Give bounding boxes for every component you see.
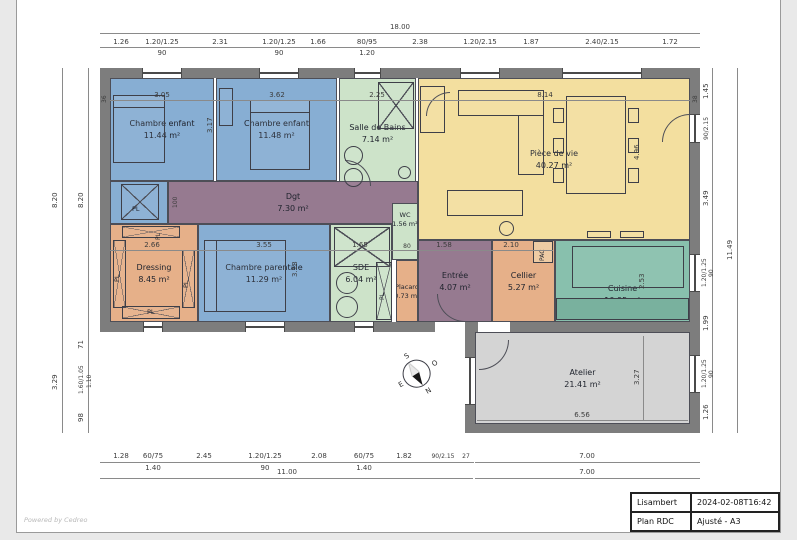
dim-line	[62, 68, 63, 332]
sofa-corner-icon	[518, 115, 544, 175]
dim-sublabel: 90	[137, 49, 187, 57]
room-placard: Placard 0.73 m²	[396, 260, 418, 322]
kitchen-island-icon	[572, 246, 684, 288]
window	[259, 68, 299, 78]
dim-label: 71	[77, 334, 86, 356]
dim-sublabel: 90	[707, 262, 716, 284]
room-name: WC	[400, 211, 411, 219]
closet-pl-label: PL	[132, 206, 140, 213]
window	[142, 68, 182, 78]
dim-line	[100, 478, 473, 479]
dim-sublabel: 1.10	[85, 364, 94, 398]
dim-label: 2.53	[638, 264, 647, 298]
dim-label: 80	[394, 243, 420, 251]
window-bay	[562, 68, 642, 78]
dim-label: 2.66	[127, 241, 177, 249]
dim-line	[475, 462, 700, 463]
dim-label: 98	[77, 406, 86, 430]
door-opening	[435, 322, 465, 332]
room-name: Placard	[396, 283, 418, 291]
chair-icon	[628, 108, 639, 123]
dim-label: 2.25	[352, 91, 402, 99]
room-area: 1.56 m²	[392, 220, 417, 228]
dim-line	[477, 420, 688, 421]
dim-line	[643, 336, 644, 420]
room-area: 5.27 m²	[508, 283, 539, 292]
chair-icon	[628, 168, 639, 183]
dim-label: 1.20/1.25	[137, 38, 187, 46]
room-area: 21.41 m²	[564, 380, 600, 389]
room-area: 7.30 m²	[277, 204, 308, 213]
window-door	[460, 68, 500, 78]
dim-label: 1.20/1.25	[240, 452, 290, 460]
toilet-icon	[398, 166, 411, 179]
title-plan-name: Plan RDC	[631, 512, 691, 531]
dim-label: 2.08	[294, 452, 344, 460]
room-degagement: Dgt 7.30 m²	[168, 181, 418, 224]
dim-label: 38	[691, 88, 700, 110]
wall-atelier-bottom	[465, 424, 700, 433]
chair-icon	[553, 138, 564, 153]
stool-icon	[587, 231, 611, 238]
room-wc: WC 1.56 m²	[392, 203, 418, 260]
kitchen-counter-icon	[556, 298, 689, 320]
dim-label: 90/2.15	[702, 107, 711, 149]
dim-line	[88, 68, 89, 332]
window-door	[690, 114, 700, 143]
dim-line	[110, 100, 690, 101]
chair-icon	[553, 108, 564, 123]
dim-line	[737, 68, 738, 433]
closet-pl-label: PL	[183, 268, 190, 288]
washer-icon	[336, 272, 358, 294]
room-area: 0.73 m²	[396, 292, 418, 300]
dim-label: 3.49	[702, 178, 711, 218]
dim-label: 2.38	[395, 38, 445, 46]
dim-label: 1.26	[702, 395, 711, 429]
title-variant: Ajusté - A3	[691, 512, 779, 531]
closet-pl-label: PL	[147, 309, 155, 316]
closet-pl-label: PL	[114, 262, 121, 282]
dim-line	[100, 47, 700, 48]
dim-label: 60/75	[128, 452, 178, 460]
window	[690, 254, 700, 292]
dim-label: 11.00	[262, 468, 312, 476]
washer-icon	[336, 296, 358, 318]
title-block: Lisambert 2024-02-08T16:42 Plan RDC Ajus…	[630, 492, 780, 532]
closet-pl-label: PL	[155, 226, 162, 240]
room-area: 7.14 m²	[362, 135, 393, 144]
window	[143, 322, 163, 332]
room-area: 4.07 m²	[439, 283, 470, 292]
lamp-icon	[499, 221, 514, 236]
dim-label: 3.18	[291, 252, 300, 286]
dim-label: 8.14	[520, 91, 570, 99]
desk-icon	[219, 88, 233, 126]
dim-label: 36	[100, 88, 109, 110]
room-name: Dressing	[137, 263, 172, 272]
bed-pillow-icon	[250, 100, 310, 113]
room-name: Dgt	[286, 192, 300, 201]
dim-label: 8.20	[77, 180, 86, 220]
dim-line	[110, 250, 553, 251]
window	[245, 322, 285, 332]
room-name: Entrée	[442, 271, 468, 280]
dim-sublabel: 90	[707, 363, 716, 385]
title-timestamp: 2024-02-08T16:42	[691, 493, 779, 512]
dim-label: 1.87	[506, 38, 556, 46]
dim-label: 2.40/2.15	[577, 38, 627, 46]
dim-label: 3.55	[239, 241, 289, 249]
dim-label: 3.29	[51, 362, 60, 402]
dim-line	[475, 478, 700, 479]
dim-label: 3.62	[252, 91, 302, 99]
floor-plan-document: Chambre enfant 11.44 m² Chambre enfant 1…	[0, 0, 797, 540]
dim-label: 1.72	[645, 38, 695, 46]
dim-label: 3.05	[137, 91, 187, 99]
dim-label: 6.56	[557, 411, 607, 419]
closet-icon	[121, 184, 159, 220]
window	[690, 355, 700, 393]
dim-label: 1.58	[419, 241, 469, 249]
dim-sublabel: 1.40	[339, 464, 389, 472]
dim-line	[62, 332, 63, 433]
dim-line	[100, 33, 700, 34]
stool-icon	[620, 231, 644, 238]
dim-label: 7.00	[562, 452, 612, 460]
dim-label: 1.65	[335, 241, 385, 249]
title-owner: Lisambert	[631, 493, 691, 512]
dim-label: 27	[453, 453, 479, 461]
dim-label: 2.45	[179, 452, 229, 460]
dim-label: 1.45	[702, 73, 711, 109]
shower-icon	[378, 82, 414, 129]
room-area: 8.45 m²	[138, 275, 169, 284]
chair-icon	[553, 168, 564, 183]
closet-pl-label: PL	[379, 282, 386, 300]
wall-bottom-main	[100, 322, 700, 332]
dim-sublabel: 1.40	[128, 464, 178, 472]
watermark: Powered by Cedreo	[24, 516, 87, 524]
dim-label: 1.20/2.15	[455, 38, 505, 46]
dim-label: 3.17	[206, 108, 215, 142]
dim-label: 11.49	[726, 230, 735, 270]
dim-label: 1.99	[702, 305, 711, 341]
dim-label: 18.00	[385, 23, 415, 31]
door-opening	[478, 322, 510, 332]
dim-label: 7.00	[562, 468, 612, 476]
window	[465, 357, 475, 405]
window	[354, 322, 374, 332]
dining-table-icon	[566, 96, 626, 194]
dim-label: 80/95	[342, 38, 392, 46]
dim-label: 4.96	[633, 135, 642, 169]
sofa-icon	[447, 190, 523, 216]
dim-label: 8.20	[51, 180, 60, 220]
dim-label: 3.27	[633, 360, 642, 394]
dim-label: 1.66	[293, 38, 343, 46]
dim-label: 100	[171, 186, 180, 218]
dim-line	[100, 462, 474, 463]
dim-label: 2.31	[195, 38, 245, 46]
closet-icon	[122, 226, 180, 238]
dim-sublabel: 90	[254, 49, 304, 57]
pac-label: PAC	[539, 243, 546, 261]
window	[354, 68, 381, 78]
dim-label: 2.10	[486, 241, 536, 249]
dim-sublabel: 1.20	[342, 49, 392, 57]
room-name: Cellier	[511, 271, 536, 280]
room-name: Atelier	[569, 368, 595, 377]
